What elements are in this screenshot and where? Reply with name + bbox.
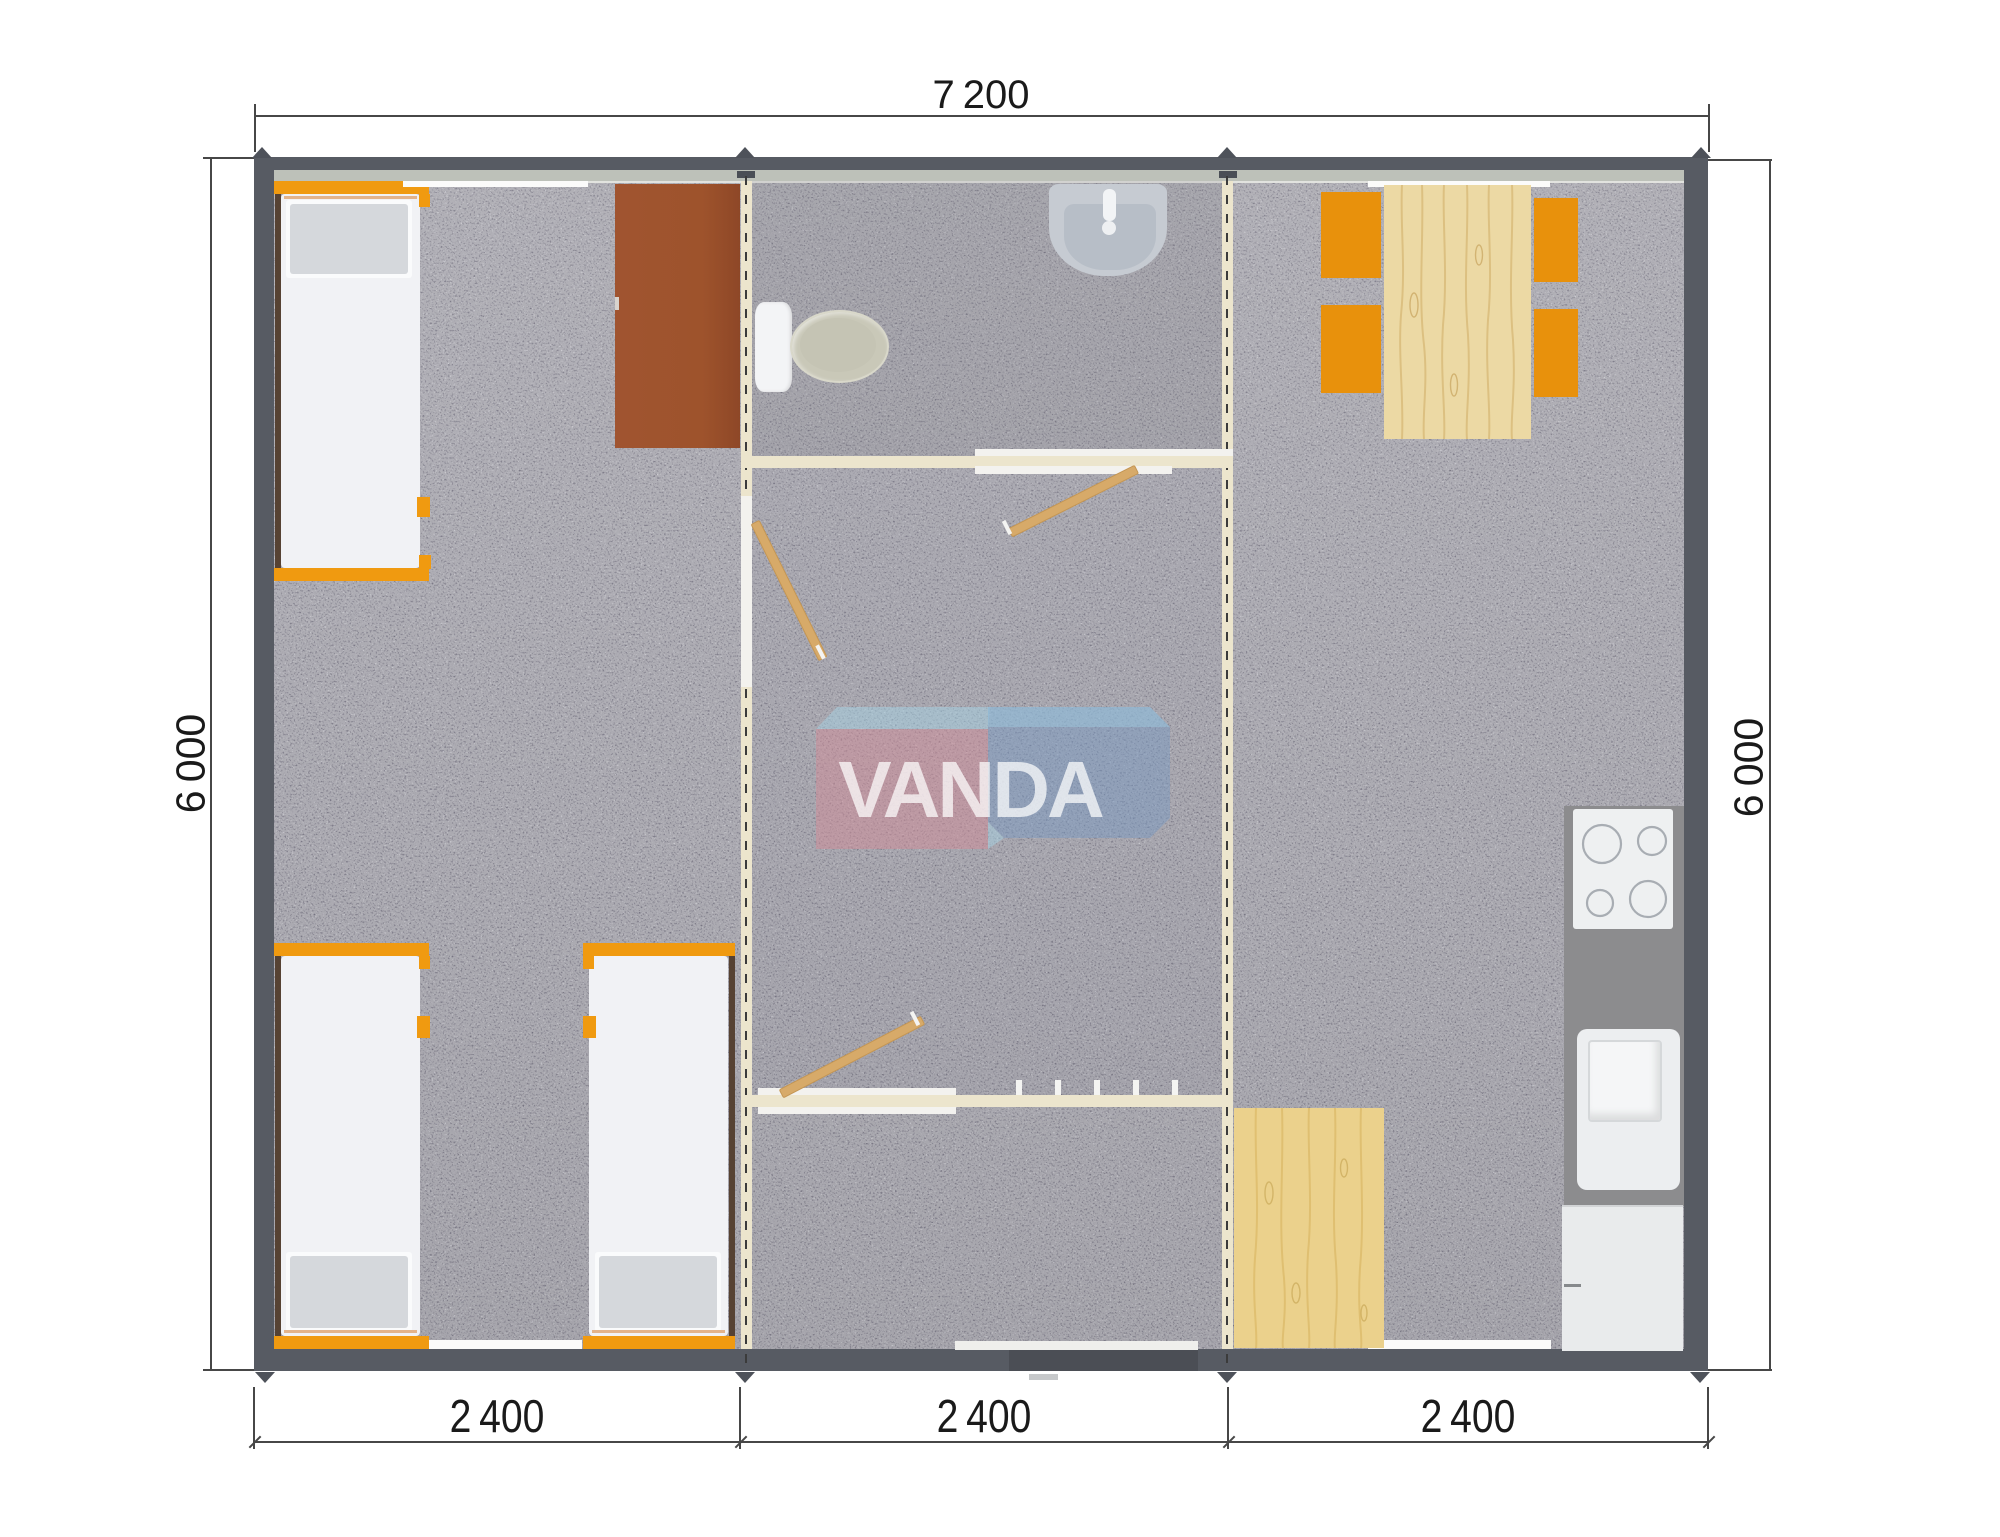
svg-text:VANDA: VANDA <box>838 745 1103 834</box>
